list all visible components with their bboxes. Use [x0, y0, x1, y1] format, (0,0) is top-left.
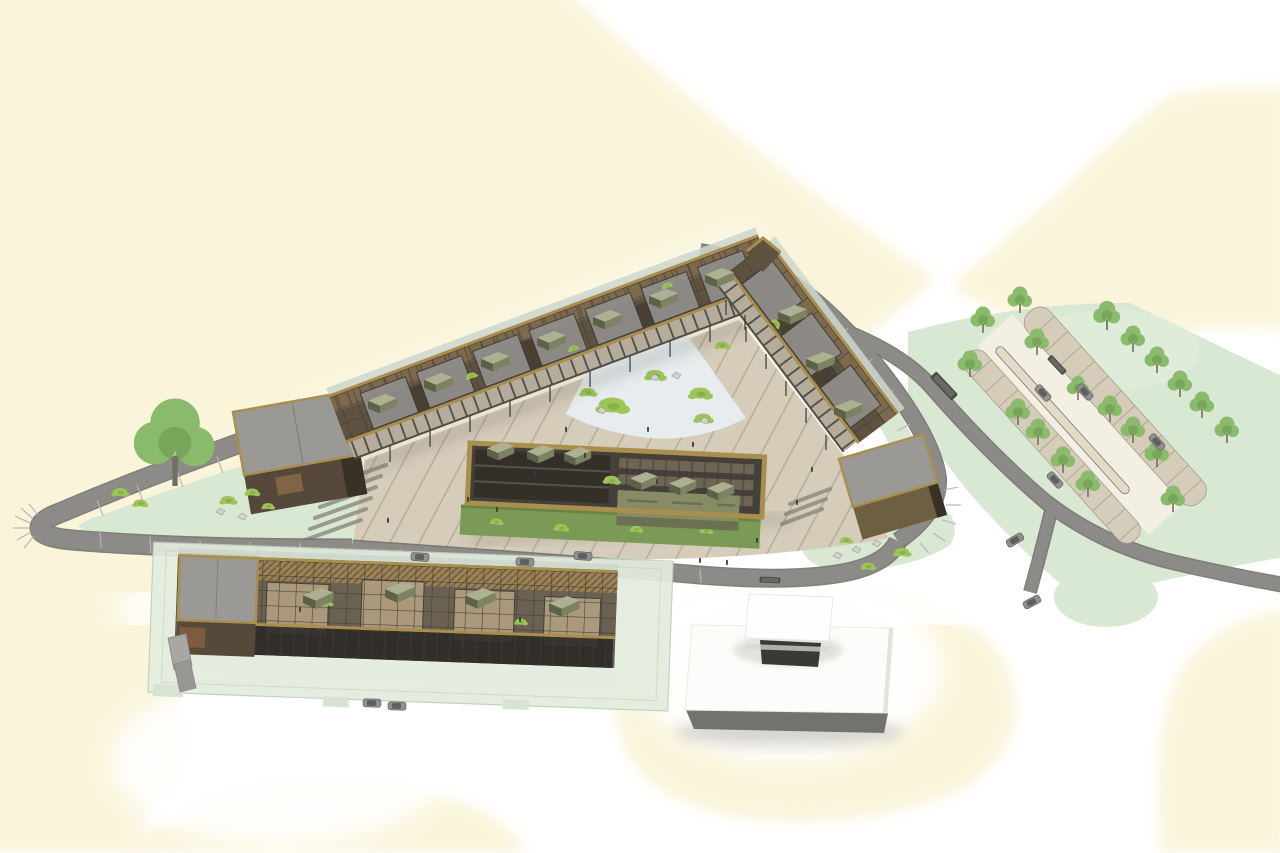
car [411, 552, 430, 561]
linear-west-block [176, 554, 258, 657]
car [516, 558, 534, 567]
car [574, 551, 593, 560]
plinth-tab [503, 699, 529, 710]
car [388, 702, 406, 711]
roundabout-circle [1054, 567, 1158, 627]
truck [759, 577, 780, 584]
penthouse-opening [760, 640, 821, 667]
plinth-tab [323, 696, 349, 707]
penthouse-roof [745, 594, 833, 641]
rendering-stage [0, 0, 1280, 853]
linear-building [148, 542, 673, 719]
car [363, 699, 381, 708]
site-rendering [0, 0, 1280, 853]
